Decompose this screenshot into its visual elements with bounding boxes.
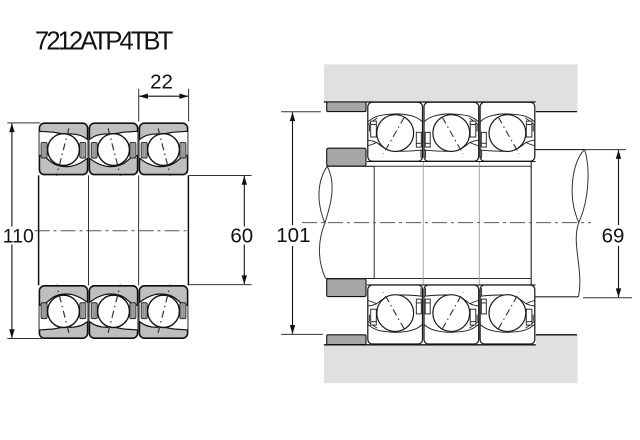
svg-text:60: 60 [230, 224, 253, 247]
svg-text:101: 101 [276, 224, 310, 247]
svg-text:110: 110 [3, 225, 34, 247]
svg-text:69: 69 [602, 225, 625, 248]
svg-text:22: 22 [150, 71, 173, 94]
svg-text:7212ATP4TBT: 7212ATP4TBT [35, 28, 173, 56]
